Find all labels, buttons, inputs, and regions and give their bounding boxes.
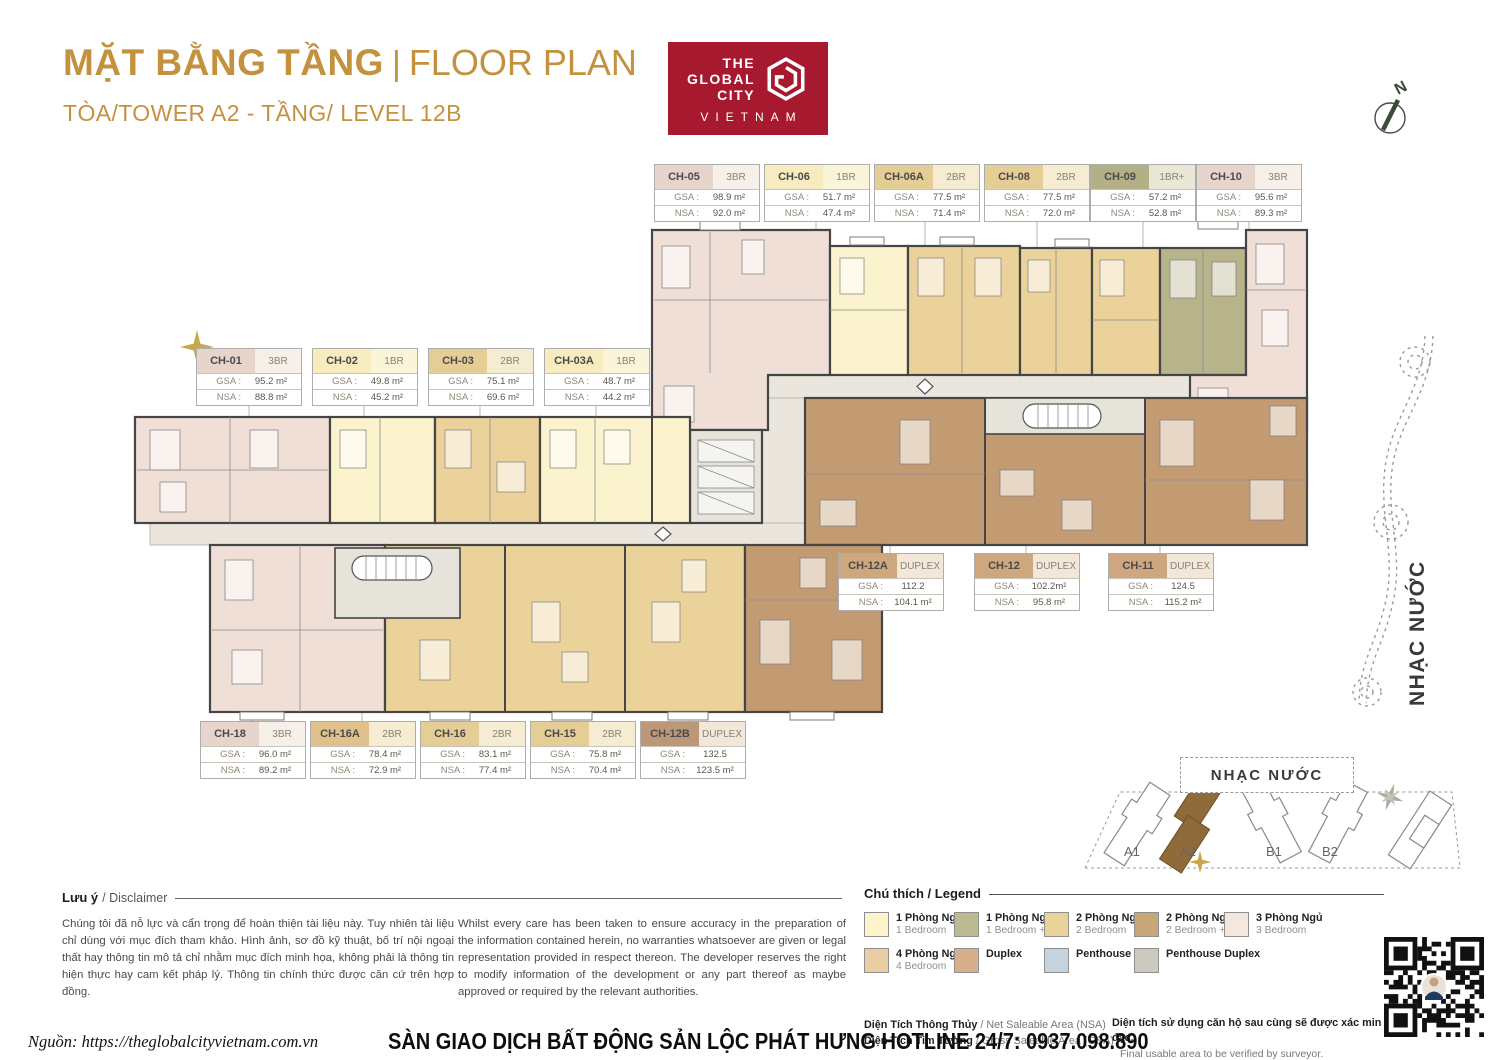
gsa-value: 77.5 m²	[1029, 192, 1089, 203]
nsa-value: 44.2 m²	[589, 392, 649, 403]
legend-label-vn: 2 Phòng Ngủ	[1076, 912, 1143, 924]
unit-type-badge: 1BR+	[1149, 165, 1195, 189]
gsa-label: GSA :	[875, 192, 919, 203]
nsa-value: 71.4 m²	[919, 208, 979, 219]
gsa-value: 124.5	[1153, 581, 1213, 592]
site-label-b1: B1	[1266, 844, 1282, 859]
disclaimer-rule	[175, 898, 842, 899]
water-show-label-box: NHẠC NƯỚC	[1180, 757, 1354, 793]
gsa-label: GSA :	[531, 749, 575, 760]
legend-item: 2 Phòng Ngủ2 Bedroom	[1044, 912, 1134, 937]
unit-card: CH-01 3BR GSA : 95.2 m² NSA : 88.8 m²	[196, 348, 302, 406]
unit-card: CH-06A 2BR GSA : 77.5 m² NSA : 71.4 m²	[874, 164, 980, 222]
gsa-value: 83.1 m²	[465, 749, 525, 760]
unit-type-badge: 2BR	[479, 722, 525, 746]
disclaimer-text-vn: Chúng tôi đã nỗ lực và cẩn trọng để hoàn…	[62, 916, 454, 1001]
nsa-value: 72.0 m²	[1029, 208, 1089, 219]
wing-bottom	[210, 545, 882, 720]
legend-row-2: 4 Phòng Ngủ4 Bedroom Duplex Penthouse Pe…	[864, 948, 1224, 973]
gsa-label: GSA :	[197, 376, 241, 387]
unit-type-badge: 2BR	[369, 722, 415, 746]
logo-word-city: CITY	[687, 87, 755, 103]
unit-id: CH-11	[1109, 554, 1167, 578]
nsa-value: 89.2 m²	[245, 765, 305, 776]
gsa-label: GSA :	[201, 749, 245, 760]
legend-label-vn: Penthouse Duplex	[1166, 948, 1260, 960]
legend-title: Chú thích / Legend	[864, 886, 981, 901]
unit-id: CH-16	[421, 722, 479, 746]
unit-id: CH-02	[313, 349, 371, 373]
unit-card: CH-15 2BR GSA : 75.8 m² NSA : 70.4 m²	[530, 721, 636, 779]
legend-label-en: 1 Bedroom	[896, 925, 963, 936]
legend-label-vn: 1 Phòng Ngủ	[896, 912, 963, 924]
logo-wordmark: THE GLOBAL CITY	[687, 55, 755, 103]
unit-id: CH-03	[429, 349, 487, 373]
gsa-value: 48.7 m²	[589, 376, 649, 387]
unit-id: CH-08	[985, 165, 1043, 189]
nsa-value: 115.2 m²	[1153, 597, 1213, 608]
site-pinwheel-icon	[1372, 779, 1407, 814]
gsa-value: 132.5	[685, 749, 745, 760]
legend-item: Penthouse Duplex	[1134, 948, 1224, 973]
disclaimer-title-vn: Lưu ý	[62, 890, 98, 905]
gsa-label: GSA :	[975, 581, 1019, 592]
gsa-value: 78.4 m²	[355, 749, 415, 760]
unit-id: CH-03A	[545, 349, 603, 373]
stairs-oval	[352, 556, 432, 580]
legend-item: 4 Phòng Ngủ4 Bedroom	[864, 948, 954, 973]
legend-swatch	[954, 948, 979, 973]
gsa-label: GSA :	[839, 581, 883, 592]
legend-item: Duplex	[954, 948, 1044, 973]
nsa-label: NSA :	[975, 597, 1019, 608]
unit-id: CH-09	[1091, 165, 1149, 189]
nsa-label: NSA :	[421, 765, 465, 776]
legend-label-en: 4 Bedroom	[896, 961, 963, 972]
legend-swatch	[1044, 948, 1069, 973]
nsa-label: NSA :	[655, 208, 699, 219]
legend-swatch	[1134, 948, 1159, 973]
floor-plan-sheet: N	[0, 0, 1500, 1060]
gsa-value: 112.2	[883, 581, 943, 592]
nsa-label: NSA :	[839, 597, 883, 608]
unit-type-badge: 3BR	[255, 349, 301, 373]
gsa-value: 49.8 m²	[357, 376, 417, 387]
unit-card: CH-05 3BR GSA : 98.9 m² NSA : 92.0 m²	[654, 164, 760, 222]
unit-type-badge: DUPLEX	[897, 554, 943, 578]
unit-id: CH-18	[201, 722, 259, 746]
nsa-label: NSA :	[1197, 208, 1241, 219]
nsa-value: 92.0 m²	[699, 208, 759, 219]
page-title: MẶT BẰNG TẦNG|FLOOR PLAN	[63, 42, 637, 84]
legend-item: 1 Phòng Ngủ1 Bedroom	[864, 912, 954, 937]
gsa-label: GSA :	[429, 376, 473, 387]
gsa-value: 98.9 m²	[699, 192, 759, 203]
unit-type-badge: 1BR	[371, 349, 417, 373]
gsa-value: 95.2 m²	[241, 376, 301, 387]
nsa-value: 95.8 m²	[1019, 597, 1079, 608]
unit-id: CH-10	[1197, 165, 1255, 189]
site-label-a2: A2	[1180, 844, 1196, 859]
logo-word-global: GLOBAL	[687, 71, 755, 87]
nsa-value: 52.8 m²	[1135, 208, 1195, 219]
unit-type-badge: 2BR	[933, 165, 979, 189]
page-title-separator: |	[392, 45, 401, 83]
legend-label-vn: Duplex	[986, 948, 1022, 960]
legend-rule	[989, 894, 1384, 895]
legend-swatch	[864, 912, 889, 937]
unit-type-badge: DUPLEX	[1167, 554, 1213, 578]
unit-type-badge: 3BR	[1255, 165, 1301, 189]
disclaimer-title-row: Lưu ý / Disclaimer	[62, 890, 842, 905]
site-building-other	[1388, 791, 1451, 869]
nsa-value: 104.1 m²	[883, 597, 943, 608]
gsa-label: GSA :	[765, 192, 809, 203]
legend-title-row: Chú thích / Legend	[864, 886, 1384, 901]
nsa-label: NSA :	[1091, 208, 1135, 219]
gsa-label: GSA :	[1109, 581, 1153, 592]
unit-id: CH-05	[655, 165, 713, 189]
nsa-value: 45.2 m²	[357, 392, 417, 403]
gsa-label: GSA :	[313, 376, 357, 387]
compass-north-label: N	[1392, 78, 1410, 98]
unit-card: CH-16A 2BR GSA : 78.4 m² NSA : 72.9 m²	[310, 721, 416, 779]
legend-swatch	[1044, 912, 1069, 937]
qr-code-pattern	[1384, 937, 1484, 1037]
stairs-oval	[1023, 404, 1101, 428]
unit-id: CH-12B	[641, 722, 699, 746]
nsa-value: 69.6 m²	[473, 392, 533, 403]
unit-card: CH-09 1BR+ GSA : 57.2 m² NSA : 52.8 m²	[1090, 164, 1196, 222]
page-title-en: FLOOR PLAN	[409, 42, 637, 83]
unit-type-badge: 1BR	[823, 165, 869, 189]
unit-type-badge: 3BR	[713, 165, 759, 189]
legend-label-vn: Penthouse	[1076, 948, 1131, 960]
lift-core	[690, 430, 762, 523]
unit-id: CH-01	[197, 349, 255, 373]
gsa-label: GSA :	[421, 749, 465, 760]
legend-item: 3 Phòng Ngủ3 Bedroom	[1224, 912, 1314, 937]
wing-right-duplex	[805, 398, 1307, 545]
gsa-value: 75.8 m²	[575, 749, 635, 760]
unit-type-badge: 3BR	[259, 722, 305, 746]
unit-type-badge: 1BR	[603, 349, 649, 373]
gsa-label: GSA :	[641, 749, 685, 760]
unit-card: CH-03 2BR GSA : 75.1 m² NSA : 69.6 m²	[428, 348, 534, 406]
unit-card: CH-16 2BR GSA : 83.1 m² NSA : 77.4 m²	[420, 721, 526, 779]
legend-swatch	[1134, 912, 1159, 937]
legend-item: 2 Phòng Ngủ +2 Bedroom +	[1134, 912, 1224, 937]
legend-swatch	[864, 948, 889, 973]
nsa-value: 77.4 m²	[465, 765, 525, 776]
disclaimer-title-en: / Disclaimer	[102, 891, 167, 905]
unit-id: CH-15	[531, 722, 589, 746]
gsa-value: 77.5 m²	[919, 192, 979, 203]
unit-type-badge: DUPLEX	[1033, 554, 1079, 578]
gsa-value: 102.2m²	[1019, 581, 1079, 592]
brand-logo: THE GLOBAL CITY VIETNAM	[668, 42, 828, 135]
gsa-label: GSA :	[1091, 192, 1135, 203]
nsa-value: 89.3 m²	[1241, 208, 1301, 219]
nsa-label: NSA :	[875, 208, 919, 219]
legend-swatch	[1224, 912, 1249, 937]
wing-left	[135, 417, 690, 541]
site-label-b2: B2	[1322, 844, 1338, 859]
gsa-value: 57.2 m²	[1135, 192, 1195, 203]
gsa-value: 96.0 m²	[245, 749, 305, 760]
unit-card: CH-06 1BR GSA : 51.7 m² NSA : 47.4 m²	[764, 164, 870, 222]
unit-id: CH-16A	[311, 722, 369, 746]
gsa-value: 75.1 m²	[473, 376, 533, 387]
compass-icon: N	[1375, 78, 1410, 133]
nsa-label: NSA :	[985, 208, 1029, 219]
nsa-label: NSA :	[545, 392, 589, 403]
nsa-value: 123.5 m²	[685, 765, 745, 776]
unit-id: CH-12A	[839, 554, 897, 578]
legend-label-en: 2 Bedroom	[1076, 925, 1143, 936]
gsa-label: GSA :	[655, 192, 699, 203]
unit-card: CH-11 DUPLEX GSA : 124.5 NSA : 115.2 m²	[1108, 553, 1214, 611]
unit-card: CH-12B DUPLEX GSA : 132.5 NSA : 123.5 m²	[640, 721, 746, 779]
gsa-label: GSA :	[985, 192, 1029, 203]
nsa-label: NSA :	[311, 765, 355, 776]
nsa-value: 88.8 m²	[241, 392, 301, 403]
nsa-label: NSA :	[531, 765, 575, 776]
unit-id: CH-06A	[875, 165, 933, 189]
page-title-vn: MẶT BẰNG TẦNG	[63, 42, 384, 83]
gsa-label: GSA :	[1197, 192, 1241, 203]
legend-label-vn: 3 Phòng Ngủ	[1256, 912, 1323, 924]
legend-row-1: 1 Phòng Ngủ1 Bedroom 1 Phòng Ngủ +1 Bedr…	[864, 912, 1314, 937]
legend-label-vn: 4 Phòng Ngủ	[896, 948, 963, 960]
unit-type-badge: 2BR	[487, 349, 533, 373]
gsa-label: GSA :	[545, 376, 589, 387]
nsa-label: NSA :	[765, 208, 809, 219]
water-show-vertical-label: NHẠC NƯỚC	[1406, 536, 1430, 706]
tower-level-subtitle: TÒA/TOWER A2 - TẦNG/ LEVEL 12B	[63, 100, 462, 127]
gsa-label: GSA :	[311, 749, 355, 760]
unit-card: CH-10 3BR GSA : 95.6 m² NSA : 89.3 m²	[1196, 164, 1302, 222]
unit-type-badge: 2BR	[1043, 165, 1089, 189]
unit-card: CH-02 1BR GSA : 49.8 m² NSA : 45.2 m²	[312, 348, 418, 406]
unit-type-badge: 2BR	[589, 722, 635, 746]
legend-label-en: 3 Bedroom	[1256, 925, 1323, 936]
unit-card: CH-18 3BR GSA : 96.0 m² NSA : 89.2 m²	[200, 721, 306, 779]
nsa-label: NSA :	[429, 392, 473, 403]
unit-id: CH-06	[765, 165, 823, 189]
disclaimer-text-en: Whilst every care has been taken to ensu…	[458, 916, 846, 1001]
unit-card: CH-12 DUPLEX GSA : 102.2m² NSA : 95.8 m²	[974, 553, 1080, 611]
nsa-label: NSA :	[641, 765, 685, 776]
legend-swatch	[954, 912, 979, 937]
gsa-value: 95.6 m²	[1241, 192, 1301, 203]
nsa-label: NSA :	[201, 765, 245, 776]
nsa-label: NSA :	[313, 392, 357, 403]
source-url[interactable]: Nguồn: https://theglobalcityvietnam.com.…	[28, 1032, 318, 1052]
gsa-value: 51.7 m²	[809, 192, 869, 203]
qr-code	[1382, 935, 1486, 1039]
unit-card: CH-12A DUPLEX GSA : 112.2 NSA : 104.1 m²	[838, 553, 944, 611]
unit-type-badge: DUPLEX	[699, 722, 745, 746]
agency-hotline-text: SÀN GIAO DỊCH BẤT ĐỘNG SẢN LỘC PHÁT HƯNG…	[388, 1028, 1148, 1055]
logo-hexagon-g-icon	[763, 56, 809, 102]
legend-item: Penthouse	[1044, 948, 1134, 973]
site-label-a1: A1	[1124, 844, 1140, 859]
nsa-label: NSA :	[1109, 597, 1153, 608]
unit-id: CH-12	[975, 554, 1033, 578]
nsa-value: 47.4 m²	[809, 208, 869, 219]
logo-word-the: THE	[687, 55, 755, 71]
agency-hotline-banner: SÀN GIAO DỊCH BẤT ĐỘNG SẢN LỘC PHÁT HƯNG…	[388, 1028, 1262, 1055]
nsa-value: 70.4 m²	[575, 765, 635, 776]
legend-item: 1 Phòng Ngủ +1 Bedroom +	[954, 912, 1044, 937]
nsa-value: 72.9 m²	[355, 765, 415, 776]
unit-card: CH-03A 1BR GSA : 48.7 m² NSA : 44.2 m²	[544, 348, 650, 406]
logo-vietnam: VIETNAM	[693, 110, 802, 124]
nsa-label: NSA :	[197, 392, 241, 403]
unit-card: CH-08 2BR GSA : 77.5 m² NSA : 72.0 m²	[984, 164, 1090, 222]
